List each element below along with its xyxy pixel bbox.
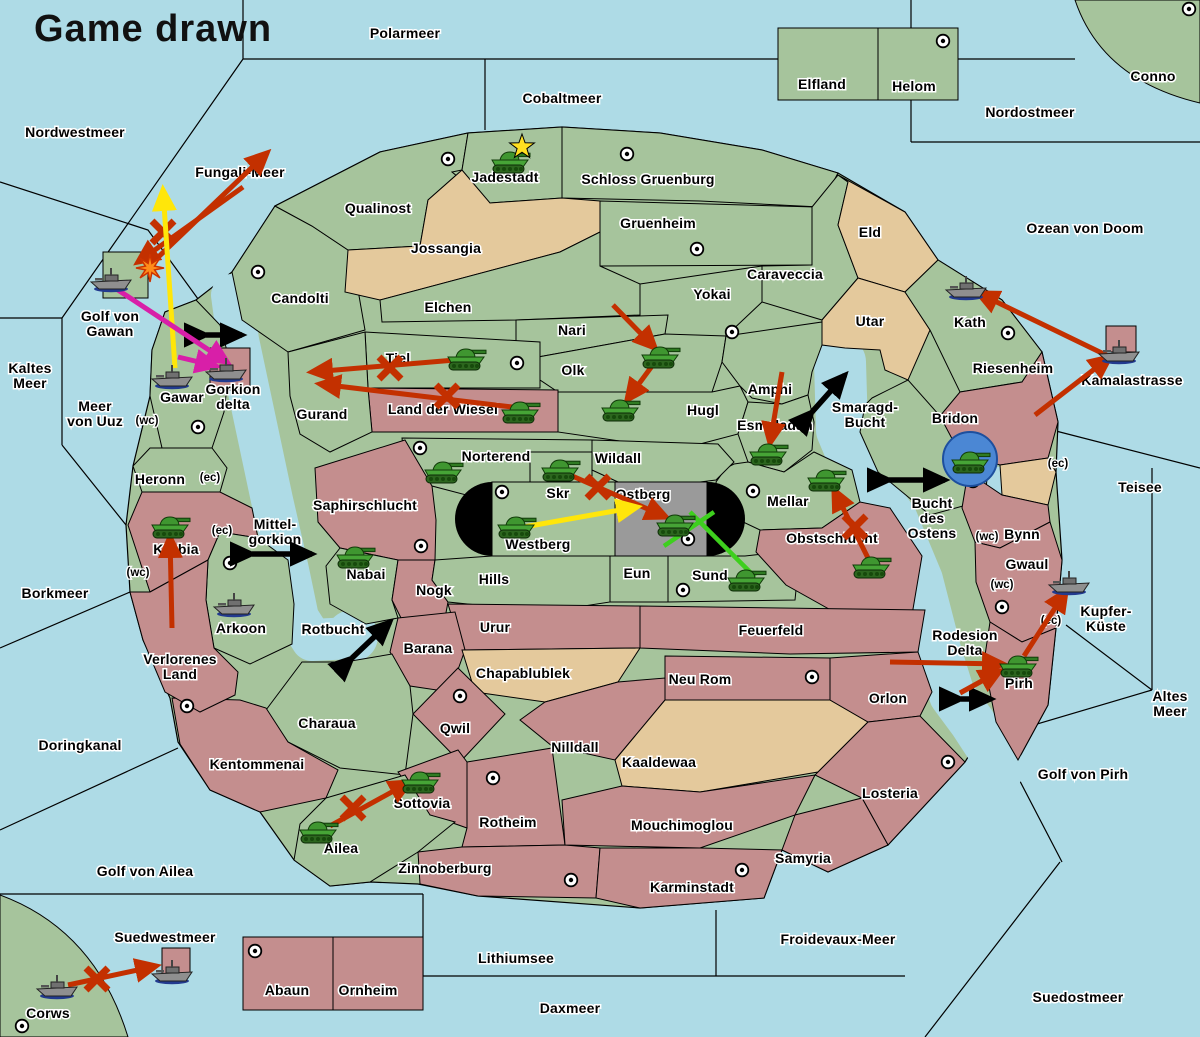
explosion-icon xyxy=(136,254,164,282)
sea-label: Bucht xyxy=(845,414,886,430)
sea-label: Borkmeer xyxy=(22,585,89,601)
territory-label: Utar xyxy=(856,313,885,329)
sea-label: Suedostmeer xyxy=(1033,989,1124,1005)
territory-label: Kentommenai xyxy=(210,756,305,772)
territory-label: Norterend xyxy=(462,448,531,464)
coast-label: (wc) xyxy=(136,415,159,427)
sea-label: Polarmeer xyxy=(370,25,441,41)
territory-conno[interactable] xyxy=(1075,0,1200,103)
sea-label: Nordwestmeer xyxy=(25,124,125,140)
supply-center-dot-core xyxy=(695,247,699,251)
territory-ornheim[interactable] xyxy=(333,937,423,1010)
supply-center-dot-core xyxy=(625,152,629,156)
territory-label: Eun xyxy=(623,565,650,581)
sea-label: Altes xyxy=(1152,688,1187,704)
sea-label: gorkion xyxy=(249,531,302,547)
territory-label: Rodesion xyxy=(932,627,997,643)
sea-label: Daxmeer xyxy=(540,1000,601,1016)
territory-label: Nilldall xyxy=(551,739,599,755)
territory-label: Gorkion xyxy=(205,381,260,397)
sea-label: Golf von Ailea xyxy=(97,863,193,879)
supply-center-dot-core xyxy=(185,704,189,708)
sea-label: Meer xyxy=(1153,703,1187,719)
supply-center-dot-core xyxy=(419,544,423,548)
supply-center-dot-core xyxy=(256,270,260,274)
supply-center-dot-core xyxy=(946,760,950,764)
supply-center-dot-core xyxy=(751,489,755,493)
territory-label: Riesenheim xyxy=(973,360,1054,376)
supply-center-dot-core xyxy=(569,878,573,882)
territory-gurand[interactable] xyxy=(288,332,372,452)
territory-label: Arkoon xyxy=(216,620,266,636)
sea-label: Suedwestmeer xyxy=(114,929,216,945)
territory-label: Olk xyxy=(561,362,584,378)
territory-karminstadt[interactable] xyxy=(596,848,782,908)
territory-label: Candolti xyxy=(271,290,329,306)
territory-label: Hills xyxy=(479,571,510,587)
supply-center-dot-core xyxy=(686,537,690,541)
territory-gruenheim[interactable] xyxy=(600,201,815,266)
territory-label: Nogk xyxy=(416,582,452,598)
sea-label: Doringkanal xyxy=(38,737,121,753)
territory-label: Land xyxy=(163,666,197,682)
supply-center-dot-core xyxy=(446,157,450,161)
sea-label: Kamalastrasse xyxy=(1081,372,1182,388)
territory-label: Bynn xyxy=(1004,526,1040,542)
supply-center-dot-core xyxy=(1000,605,1004,609)
supply-center-dot-core xyxy=(941,39,945,43)
territory-label: Bridon xyxy=(932,410,978,426)
sea-label: des xyxy=(920,510,945,526)
territory-label: Hugl xyxy=(687,402,719,418)
territory-label: Gawar xyxy=(160,389,204,405)
territory-label: Barana xyxy=(404,640,453,656)
territory-urur[interactable] xyxy=(448,604,640,650)
sea-label: Bucht xyxy=(912,495,953,511)
territory-label: Skr xyxy=(546,485,570,501)
territory-label: Losteria xyxy=(862,785,918,801)
supply-center-dot-core xyxy=(515,361,519,365)
territory-label: Mouchimoglou xyxy=(631,817,733,833)
coast-label: (ec) xyxy=(200,472,221,484)
territory-label: Karminstadt xyxy=(650,879,734,895)
sea-label: Cobaltmeer xyxy=(522,90,601,106)
map-svg: ElflandHelomConnoJadestadtSchloss Gruenb… xyxy=(0,0,1200,1037)
coast-label: (ec) xyxy=(1048,458,1069,470)
supply-center-dot-core xyxy=(500,490,504,494)
sea-label: Teisee xyxy=(1118,479,1162,495)
territory-label: Samyria xyxy=(775,850,831,866)
supply-center-dot-core xyxy=(253,949,257,953)
sea-label: Ozean von Doom xyxy=(1026,220,1143,236)
territory-hugl[interactable] xyxy=(558,386,748,444)
territory-label: Helom xyxy=(892,78,936,94)
page-title: Game drawn xyxy=(34,8,272,51)
territory-label: Eld xyxy=(859,224,881,240)
territory-label: Chapablublek xyxy=(476,665,570,681)
territory-label: Heronn xyxy=(135,471,185,487)
territory-label: Jossangia xyxy=(411,240,481,256)
supply-center-dot-core xyxy=(418,446,422,450)
territory-label: Orlon xyxy=(869,690,907,706)
supply-center-dot-core xyxy=(1006,331,1010,335)
coast-label: (ec) xyxy=(212,525,233,537)
sea-label: Golf von Pirh xyxy=(1038,766,1129,782)
territory-label: delta xyxy=(216,396,250,412)
territory-label: Elfland xyxy=(798,76,846,92)
territory-label: Elchen xyxy=(424,299,471,315)
territory-label: Charaua xyxy=(298,715,355,731)
territory-label: Verlorenes xyxy=(143,651,217,667)
territory-label: Kath xyxy=(954,314,986,330)
sea-label: von Uuz xyxy=(67,413,123,429)
territory-rotheim[interactable] xyxy=(462,748,565,847)
supply-center-dot-core xyxy=(491,776,495,780)
territory-label: Caraveccia xyxy=(747,266,823,282)
territory-label: Qualinost xyxy=(345,200,411,216)
territory-label: Qwil xyxy=(440,720,470,736)
sea-label: Kaltes xyxy=(8,360,51,376)
territory-label: Gurand xyxy=(297,406,348,422)
game-map-stage: ElflandHelomConnoJadestadtSchloss Gruenb… xyxy=(0,0,1200,1037)
territory-hills[interactable] xyxy=(432,556,610,612)
supply-center-dot-core xyxy=(681,588,685,592)
sea-label: Rotbucht xyxy=(301,621,364,637)
sea-label: Smaragd- xyxy=(832,399,898,415)
supply-center-dot-core xyxy=(196,425,200,429)
territory-label: Korbia xyxy=(153,541,199,557)
territory-label: Kupfer- xyxy=(1080,603,1131,619)
territory-label: Wildall xyxy=(595,450,641,466)
territory-label: Sottovia xyxy=(394,795,451,811)
move-arrow-red xyxy=(170,537,172,628)
territory-schloss-gruenburg[interactable] xyxy=(562,127,838,207)
supply-center-dot-core xyxy=(458,694,462,698)
sea-label: Lithiumsee xyxy=(478,950,554,966)
coast-label: (wc) xyxy=(991,579,1014,591)
territory-label: Ornheim xyxy=(339,982,398,998)
supply-center-dot-core xyxy=(810,675,814,679)
supply-center-dot-core xyxy=(730,330,734,334)
territory-label: Rotheim xyxy=(479,814,536,830)
territory-label: Conno xyxy=(1130,68,1175,84)
territory-label: Küste xyxy=(1086,618,1126,634)
sea-label: Meer xyxy=(13,375,47,391)
territory-label: Gruenheim xyxy=(620,215,696,231)
coast-label: (wc) xyxy=(127,567,150,579)
territory-label: Sund xyxy=(692,567,728,583)
territory-label: Neu Rom xyxy=(669,671,732,687)
territory-label: Nari xyxy=(558,322,586,338)
territory-label: Urur xyxy=(480,619,511,635)
territory-label: Yokai xyxy=(693,286,730,302)
sea-label: Meer xyxy=(78,398,112,414)
sea-label: Gawan xyxy=(87,323,134,339)
territory-label: Schloss Gruenburg xyxy=(581,171,714,187)
territory-label: Mellar xyxy=(767,493,809,509)
supply-center-dot-core xyxy=(1187,7,1191,11)
territory-label: Kaaldewaa xyxy=(622,754,696,770)
territory-label: Abaun xyxy=(265,982,310,998)
territory-label: Feuerfeld xyxy=(739,622,804,638)
sea-label: Mittel- xyxy=(254,516,297,532)
coast-label: (wc) xyxy=(976,531,999,543)
sea-label: Golf von xyxy=(81,308,139,324)
territory-label: Delta xyxy=(947,642,982,658)
sea-label: Nordostmeer xyxy=(985,104,1075,120)
territory-label: Zinnoberburg xyxy=(398,860,491,876)
territory-label: Corws xyxy=(26,1005,70,1021)
sea-label: Ostens xyxy=(908,525,957,541)
move-arrow-red xyxy=(890,662,1003,664)
sea-label: Froidevaux-Meer xyxy=(780,931,895,947)
supply-center-dot-core xyxy=(740,868,744,872)
territory-label: Gwaul xyxy=(1005,556,1048,572)
territory-label: Amphi xyxy=(748,381,793,397)
supply-center-dot-core xyxy=(228,561,232,565)
territory-label: Saphirschlucht xyxy=(313,497,417,513)
supply-center-dot-core xyxy=(20,1024,24,1028)
